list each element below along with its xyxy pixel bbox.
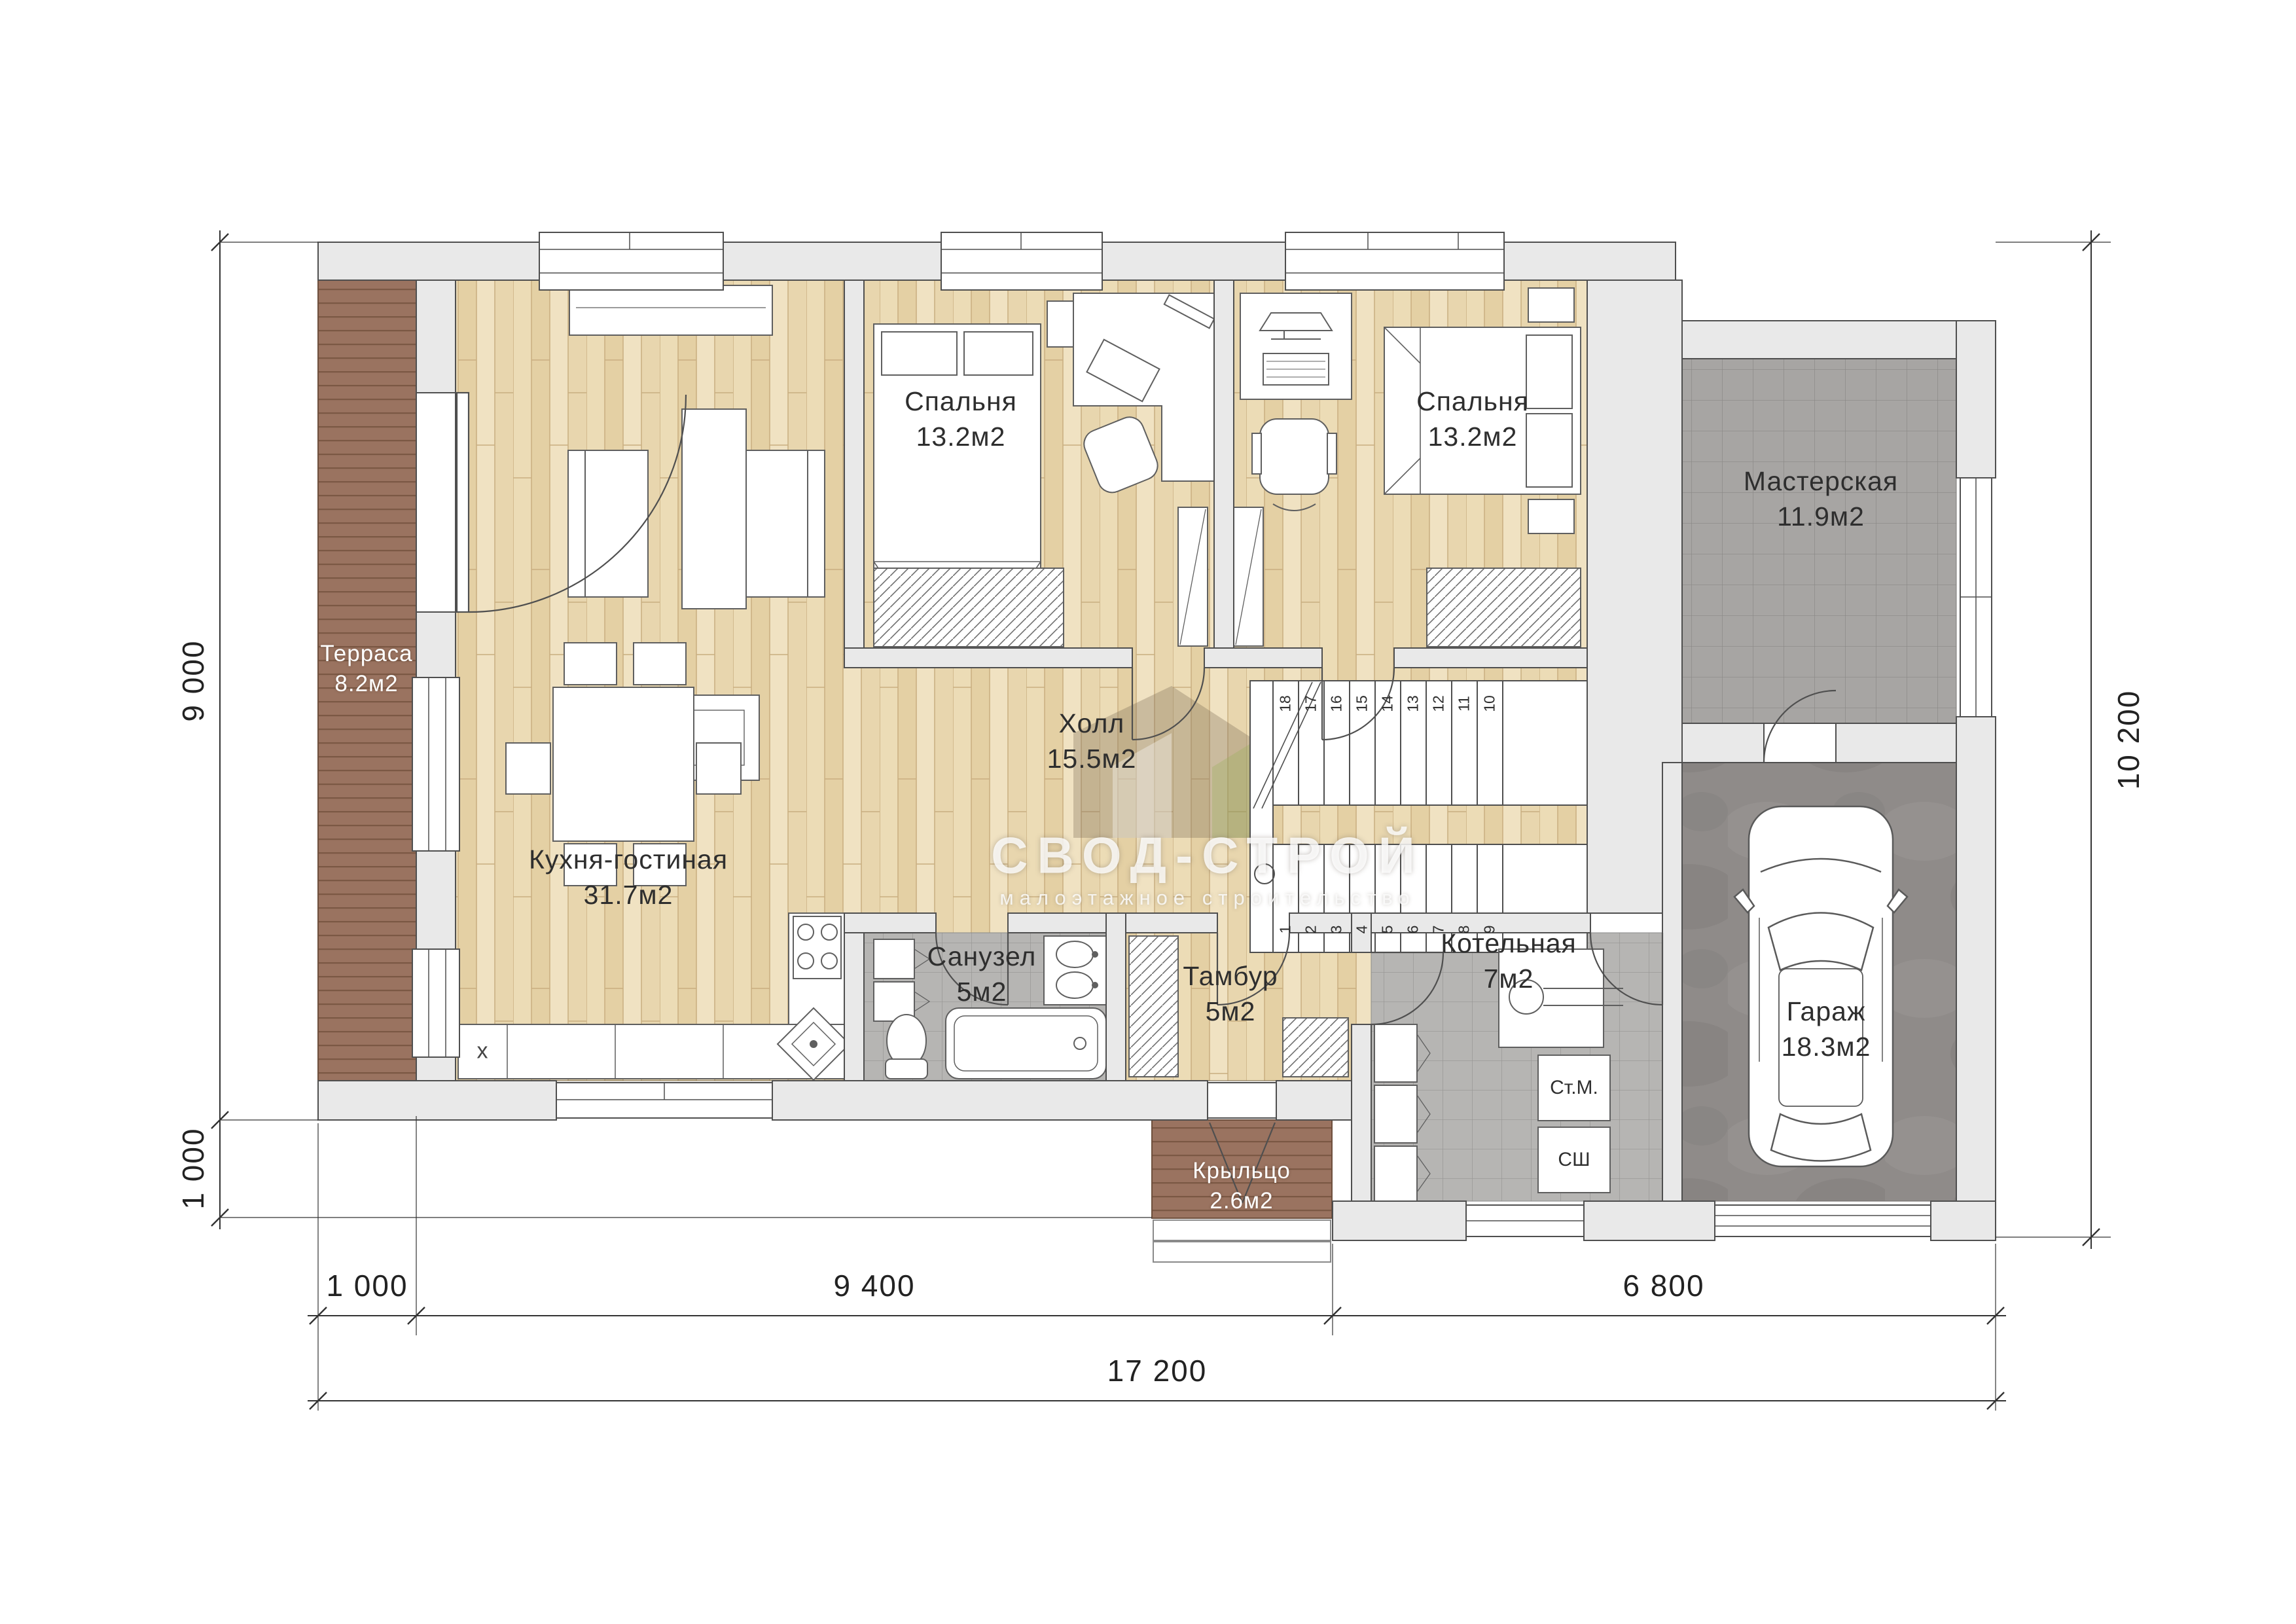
media-console [569,285,772,335]
room-label-kitchen-living: Кухня-гостиная 31.7м2 [529,842,728,912]
nightstand [1528,499,1574,533]
room-label-hall: Холл 15.5м2 [1047,706,1137,776]
stair-step-number: 10 [1481,695,1499,712]
floor-plan-canvas: Терраса 8.2м2 Кухня-гостиная 31.7м2 Спал… [0,0,2296,1624]
stair-step-number: 8 [1456,926,1473,934]
stair-step-number: 12 [1430,695,1448,712]
wall-bottom-right-section [1333,1201,1466,1240]
armrest [1252,433,1261,474]
wall-living-bedroom1 [844,280,864,648]
workshop-floor [1682,359,1956,723]
dim-bottom-total: 17 200 [1107,1353,1208,1388]
stair-step-number: 14 [1379,695,1397,712]
wardrobe [1427,568,1581,647]
pillow [1526,414,1572,487]
room-label-boiler-room: Котельная 7м2 [1441,926,1576,996]
stair-step-number: 6 [1405,926,1422,934]
armrest [1327,433,1336,474]
window [412,677,459,851]
garage-door [1715,1205,1931,1236]
closet [1129,936,1178,1077]
pillow [882,332,957,375]
room-label-vestibule: Тамбур 5м2 [1183,958,1278,1029]
dim-left-height: 9 000 [175,640,211,721]
workshop-door-opening [1764,723,1836,763]
cabinet [874,939,914,979]
sofa-back [808,450,825,597]
kitchen-unit-label: x [477,1039,488,1064]
stair-step-number: 11 [1456,696,1473,712]
stair-step-number: 7 [1430,926,1448,934]
pillow [1526,335,1572,408]
wall-right-outer [1956,321,1996,478]
wall-bottom [318,1081,556,1120]
dining-chair [506,743,550,794]
room-label-terrace: Терраса 8.2м2 [320,639,412,699]
dining-table [553,687,694,841]
dim-bottom-house: 9 400 [833,1268,915,1303]
car-top-view [1734,806,1907,1166]
wall-bath-vestibule [1106,913,1126,1081]
wall-bedroom-divider [1214,280,1234,648]
watermark-brand: СВОД-СТРОЙ [991,826,1424,886]
room-label-bathroom: Санузел 5м2 [927,939,1037,1009]
porch-steps [1153,1220,1331,1262]
stair-step-number: 3 [1328,926,1346,934]
bathtub [946,1008,1106,1079]
sink [1056,972,1093,998]
office-chair [1260,419,1329,494]
stair-step-number: 4 [1354,926,1371,934]
room-label-workshop: Мастерская 11.9м2 [1744,463,1898,534]
stair-step-number: 17 [1302,695,1320,712]
watermark-tagline: малоэтажное строительство [999,886,1415,910]
toilet-tank [886,1059,927,1079]
wall-top-right-section [1662,321,1996,359]
wall-bedrooms-bottom [844,648,1132,668]
nightstand [1528,288,1574,322]
cabinet [1374,1024,1417,1082]
stair-step-number: 16 [1328,695,1346,712]
stair-step-number: 15 [1354,695,1371,712]
pillow [964,332,1033,375]
staircase [1250,681,1587,952]
wall-boiler-garage [1662,763,1682,1201]
stair-step-number: 9 [1481,926,1499,934]
stair-step-number: 18 [1277,695,1295,712]
window [412,949,459,1057]
porch-door-opening [1208,1083,1276,1118]
cabinet [1374,1146,1417,1201]
dim-bottom-terrace: 1 000 [326,1268,408,1303]
wall-workshop-garage [1682,723,1764,763]
sofa-back [568,450,585,597]
terrace-door-opening [416,393,456,612]
window [539,232,723,290]
terrace-door-leaf [457,393,469,612]
drying-cabinet-label: СШ [1558,1149,1590,1171]
window [1285,232,1504,290]
dining-chair [634,643,686,685]
wardrobe [874,568,1064,647]
dining-chair [696,743,741,794]
console-table [682,409,746,609]
bench [1283,1018,1348,1077]
room-label-porch: Крыльцо 2.6м2 [1193,1156,1291,1216]
stair-step-number: 1 [1277,926,1295,934]
room-label-bedroom-1: Спальня 13.2м2 [905,384,1017,454]
sink [1056,941,1093,967]
room-label-garage: Гараж 18.3м2 [1782,994,1871,1064]
stair-step-number: 2 [1302,926,1320,934]
dim-left-porch: 1 000 [175,1127,211,1209]
washing-machine-label: Ст.М. [1550,1077,1598,1099]
monitor [1260,313,1332,331]
stair-step-number: 5 [1379,926,1397,934]
stair-step-number: 13 [1405,695,1422,712]
dim-right-height: 10 200 [2111,690,2146,790]
dining-chair [564,643,617,685]
wall-bathroom-top [844,913,936,933]
cabinet [1374,1085,1417,1143]
dim-bottom-garage: 6 800 [1623,1268,1704,1303]
window [941,232,1102,290]
room-label-bedroom-2: Спальня 13.2м2 [1416,384,1529,454]
